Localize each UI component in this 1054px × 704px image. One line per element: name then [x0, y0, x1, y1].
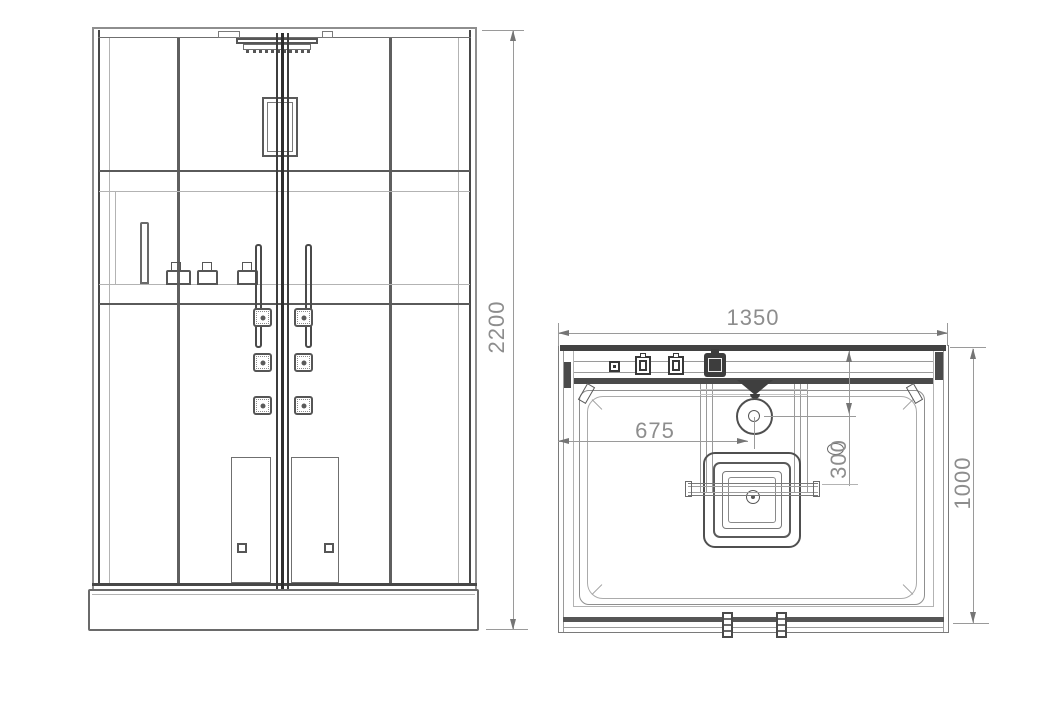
back-channel-line-1: [574, 361, 933, 362]
dim-arrow-right-icon: [737, 438, 748, 444]
shower-tray-front: [88, 589, 479, 631]
dim-height-line: [513, 31, 514, 629]
wall-hinge-right: [935, 352, 943, 380]
wall-left-inner: [573, 351, 574, 607]
control-panel-inner: [267, 102, 293, 152]
wall-right-outer: [948, 345, 949, 633]
glass-mullion-right: [389, 38, 392, 583]
bench-band-line: [688, 483, 818, 484]
door-handle-right: [305, 244, 312, 348]
plan-door-handle-right: [776, 612, 787, 638]
dim-tick: [950, 347, 986, 348]
rail-lower: [99, 303, 470, 305]
body-jet-icon: [294, 353, 313, 372]
wall-right-mid: [943, 351, 944, 632]
body-jet-icon: [253, 396, 272, 415]
frame-top-outer: [92, 27, 477, 29]
body-jet-icon: [294, 308, 313, 327]
shower-arm-icon: [737, 380, 773, 395]
dim-arrow-left-icon: [558, 438, 569, 444]
wall-knob-icon: [668, 356, 684, 375]
body-jet-icon: [294, 396, 313, 415]
dim-tick: [953, 623, 989, 624]
dim-arrow-up-icon: [970, 348, 976, 359]
bench-end-cap: [813, 481, 820, 497]
dim-width-line: [558, 333, 948, 334]
column-line: [807, 384, 808, 493]
dim-tick: [558, 323, 559, 346]
faucet-knob-1: [166, 270, 191, 285]
bench-band-line: [688, 495, 818, 496]
back-channel-line-2: [574, 372, 933, 373]
shampoo-bottle: [140, 222, 149, 284]
wall-fixture-small-icon: [609, 361, 620, 372]
dim-offset-label: 675: [615, 419, 695, 443]
wall-right-inner: [933, 351, 934, 607]
lower-panel-right: [291, 457, 339, 583]
dim-arrow-down-icon: [970, 612, 976, 623]
wall-left-mid: [563, 351, 564, 632]
frame-bottom-rail: [92, 583, 477, 586]
door-handle-left: [255, 244, 262, 348]
wall-left-outer: [558, 345, 559, 633]
door-stile-left: [276, 33, 278, 590]
back-wall-outer-band: [560, 345, 946, 351]
dim-tick-top: [482, 30, 524, 31]
lower-panel-left: [231, 457, 271, 583]
panel-square-left: [237, 543, 247, 553]
door-stile-center: [281, 33, 284, 590]
wall-knob-icon: [635, 356, 651, 375]
dim-tick: [947, 323, 948, 346]
wall-hinge-left: [564, 362, 571, 388]
rail-upper-inner: [99, 191, 470, 192]
faucet-knob-2: [197, 270, 218, 285]
body-jet-icon: [253, 308, 272, 327]
dim-height-label: 2200: [485, 292, 509, 362]
center-extension-line: [754, 417, 755, 449]
frame-left-inner: [98, 30, 100, 583]
dim-arrow-down-icon: [846, 403, 852, 414]
front-wall-mid: [563, 627, 944, 628]
tray-top-line: [92, 594, 475, 595]
column-line: [700, 384, 701, 493]
shower-nozzles: [246, 50, 310, 53]
bench-band-line: [688, 486, 818, 487]
glass-edge-right: [458, 38, 459, 583]
panel-square-right: [324, 543, 334, 553]
glass-edge-left: [109, 38, 110, 583]
door-stile-right: [287, 33, 289, 590]
bench-end-cap: [685, 481, 692, 497]
front-wall-band: [563, 617, 944, 622]
dim-tick: [764, 416, 856, 417]
dim-arrow-left-icon: [558, 330, 569, 336]
wall-mixer-icon: [704, 353, 726, 377]
plan-door-handle-left: [722, 612, 733, 638]
front-wall-inner: [573, 606, 933, 607]
dim-arrow-up-icon: [510, 30, 516, 41]
frame-right-outer: [475, 27, 477, 590]
bench-band-line: [688, 492, 818, 493]
dim-arrow-up-icon: [846, 351, 852, 362]
shelf-line: [99, 284, 470, 285]
technical-drawing-canvas: 2200: [0, 0, 1054, 704]
frame-left-outer: [92, 27, 94, 590]
dim-tick-bottom: [486, 629, 528, 630]
shower-head-mount-left: [218, 31, 240, 38]
front-wall-outer: [558, 632, 949, 633]
glass-mullion-left: [177, 38, 180, 583]
dim-head-depth-label: 300: [827, 429, 851, 489]
dim-width-label: 1350: [703, 306, 803, 330]
shelf-side-line: [115, 192, 116, 284]
frame-right-inner: [469, 30, 471, 583]
dim-depth-label: 1000: [951, 448, 975, 518]
rail-upper: [99, 170, 470, 172]
shower-head-mount-right: [322, 31, 333, 38]
body-jet-icon: [253, 353, 272, 372]
